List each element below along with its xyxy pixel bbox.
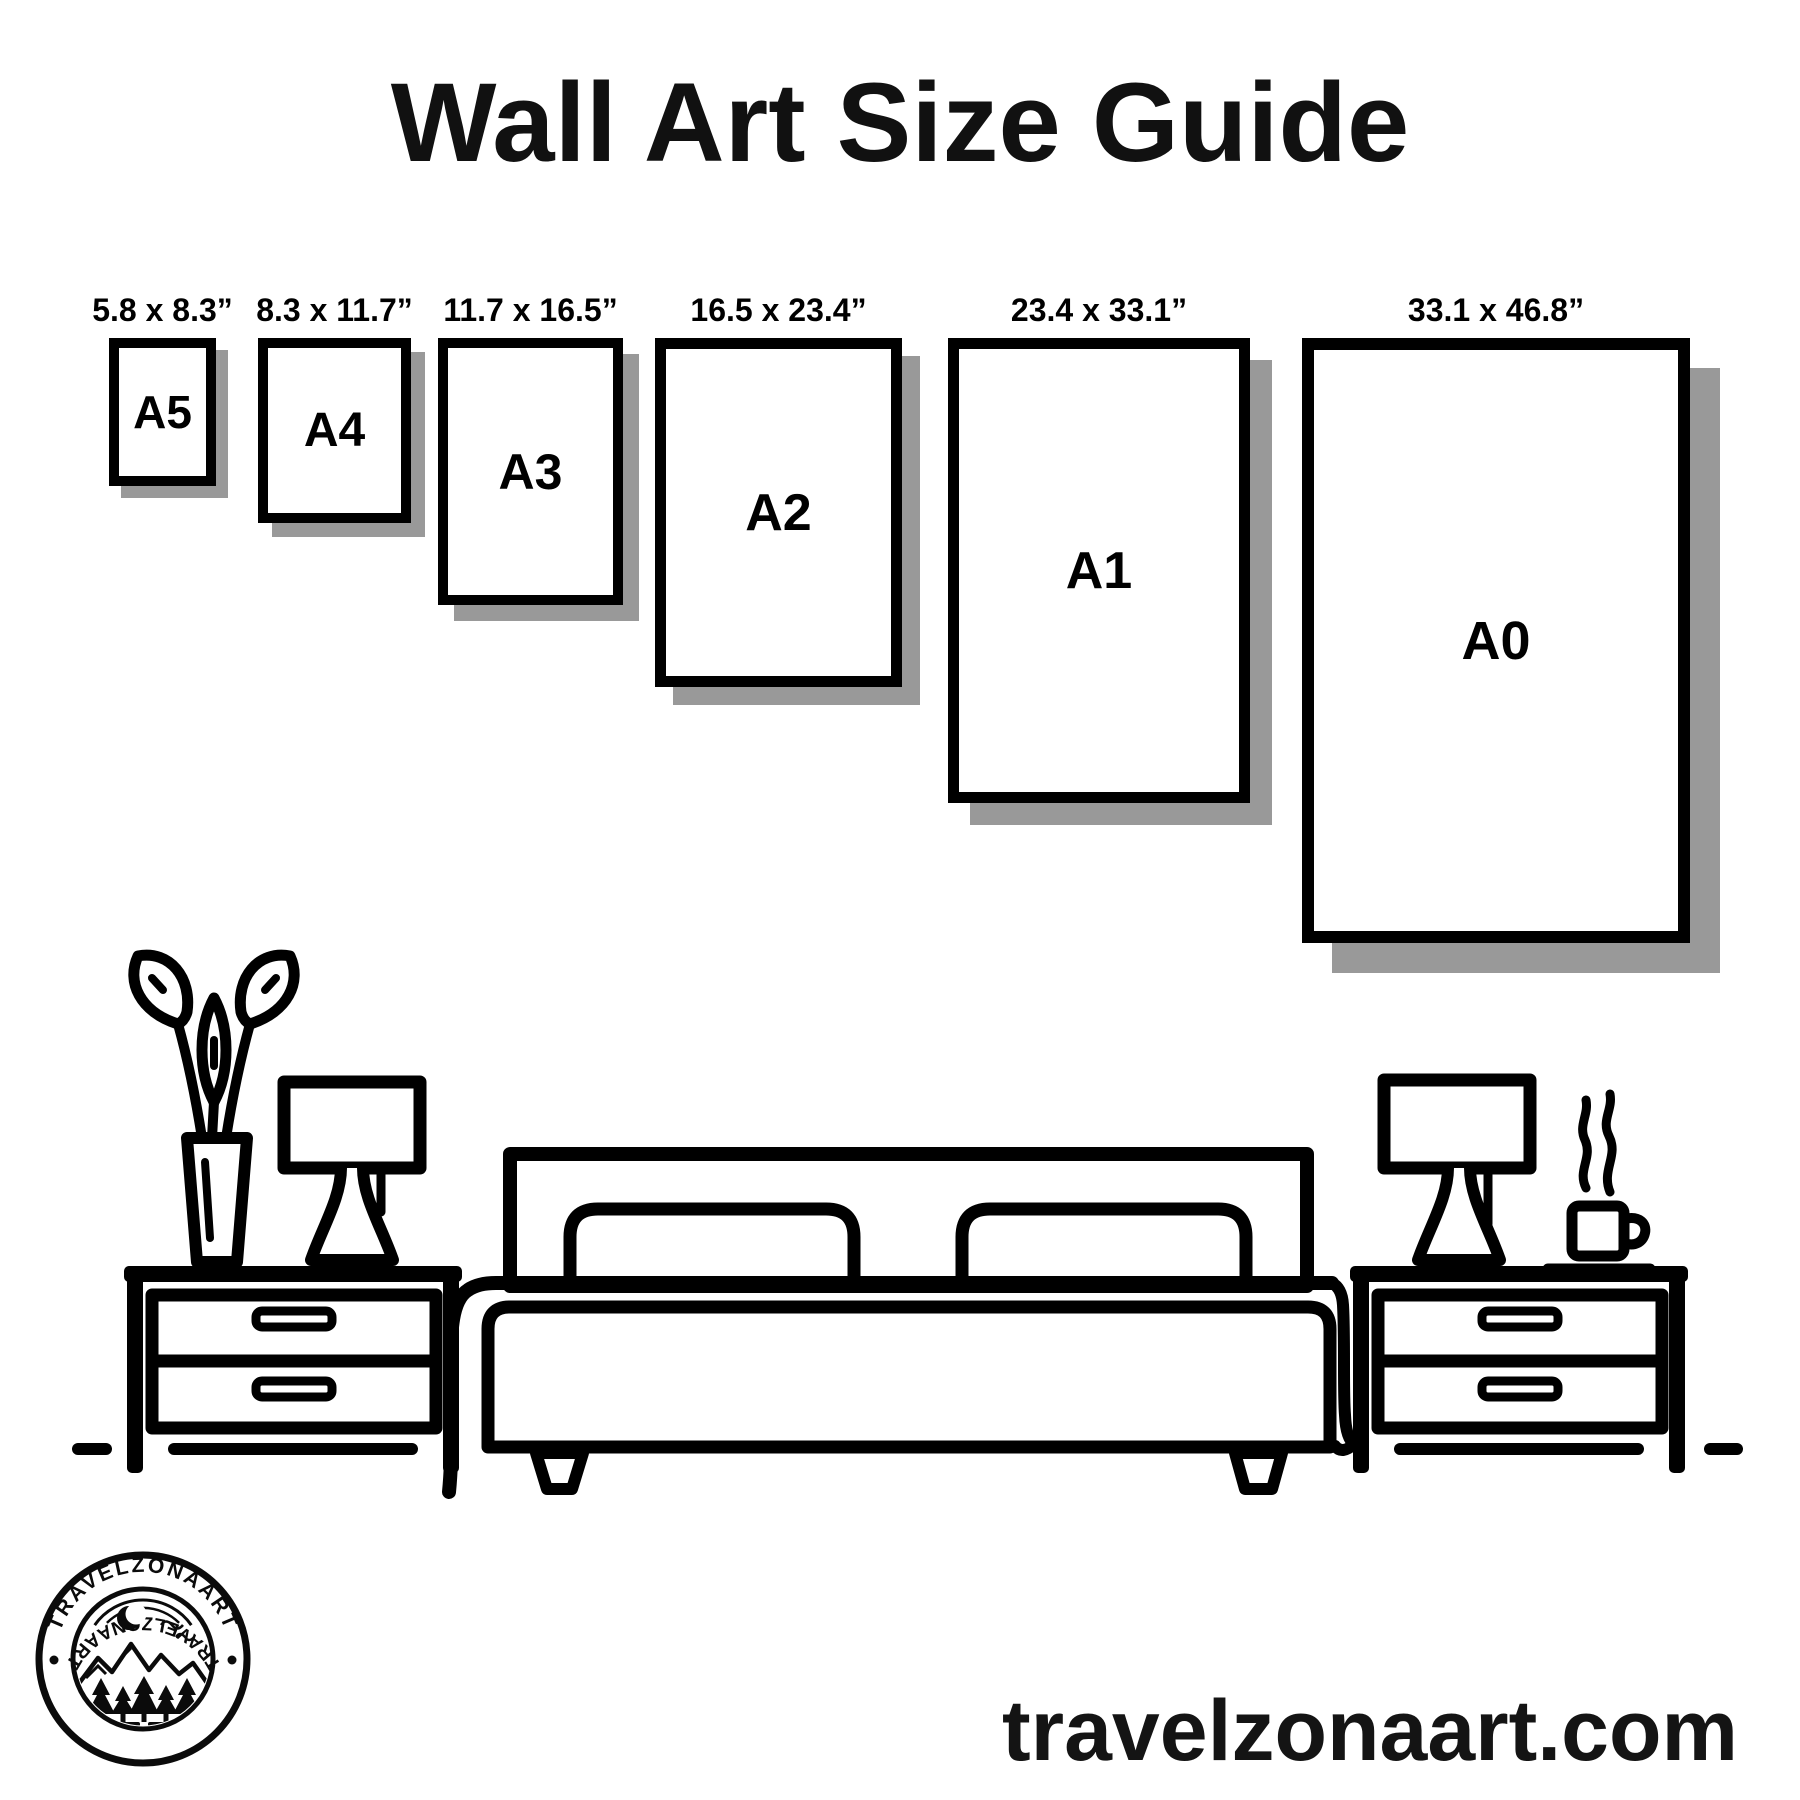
plant-vase-icon xyxy=(134,955,294,1262)
separator-dot xyxy=(50,1656,59,1665)
nightstand-leg xyxy=(1669,1266,1685,1473)
nightstand-icon xyxy=(124,1266,462,1473)
moon-icon xyxy=(126,1604,147,1625)
separator-dot xyxy=(228,1656,237,1665)
brand-logo: TRAVELZONAART TRAVELZONAART xyxy=(28,1544,258,1774)
vase-highlight xyxy=(205,1162,210,1238)
drawer-handle xyxy=(1482,1311,1558,1327)
drawer-handle xyxy=(1482,1381,1558,1397)
nightstand-leg xyxy=(1353,1266,1369,1473)
bed-leg xyxy=(1235,1453,1282,1489)
nightstand-icon xyxy=(1350,1266,1688,1473)
nightstand-top xyxy=(124,1266,462,1282)
lamp-shade xyxy=(284,1082,420,1168)
table-lamp-icon xyxy=(1384,1080,1530,1260)
double-bed-icon xyxy=(449,1154,1354,1492)
steam-icon xyxy=(1583,1100,1588,1188)
bed-leg xyxy=(536,1453,583,1489)
lamp-shade xyxy=(1384,1080,1530,1168)
pillow-icon xyxy=(570,1209,854,1286)
table-lamp-icon xyxy=(284,1082,420,1260)
wall-art-size-guide-poster: Wall Art Size Guide 5.8 x 8.3” A5 8.3 x … xyxy=(0,0,1800,1800)
coffee-cup-icon xyxy=(1548,1094,1650,1269)
drawer-handle xyxy=(256,1311,332,1327)
bedroom-illustration xyxy=(0,0,1800,1800)
cup-body xyxy=(1572,1206,1624,1256)
mattress xyxy=(488,1307,1330,1447)
vase xyxy=(187,1138,247,1262)
nightstand-leg xyxy=(443,1266,459,1473)
pillow-icon xyxy=(962,1209,1246,1286)
steam-icon xyxy=(1606,1094,1612,1192)
nightstand-leg xyxy=(127,1266,143,1473)
drawer-handle xyxy=(256,1381,332,1397)
website-link[interactable]: travelzonaart.com xyxy=(970,1682,1770,1781)
